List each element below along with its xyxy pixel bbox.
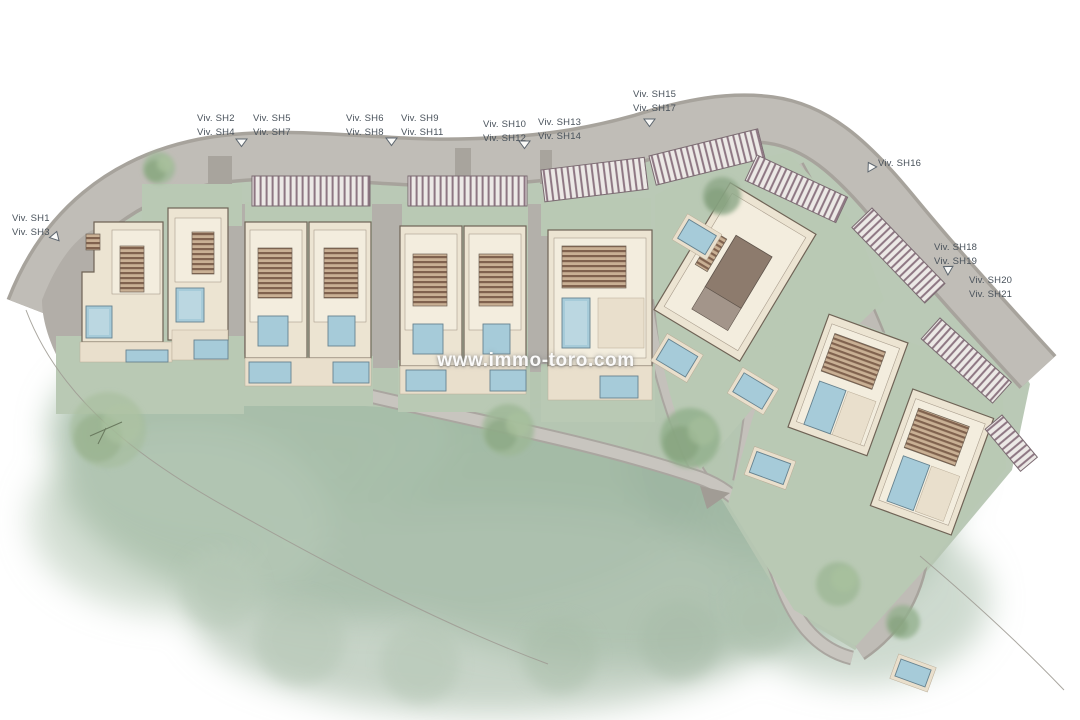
plot-label-sh16: Viv. SH16 [878, 157, 921, 171]
pool [126, 350, 168, 362]
pool [333, 362, 369, 383]
tree [482, 404, 534, 456]
tree [143, 152, 175, 184]
driveway-strip [372, 204, 402, 368]
plot-label-sh18-sh19: Viv. SH18Viv. SH19 [934, 241, 977, 268]
pool [600, 376, 638, 398]
plot-label-sh10-sh12: Viv. SH10Viv. SH12 [483, 118, 526, 145]
plot-label-sh2-sh4: Viv. SH2Viv. SH4 [197, 112, 235, 139]
pool [328, 316, 355, 346]
plot-label-sh20-sh21: Viv. SH20Viv. SH21 [969, 274, 1012, 301]
pool [406, 370, 446, 391]
tree [660, 408, 720, 468]
pool [194, 340, 228, 359]
pool [258, 316, 288, 346]
villa-sh1 [82, 222, 163, 342]
villa-sh3 [168, 208, 228, 340]
site-plan-canvas: Viv. SH1Viv. SH3 Viv. SH2Viv. SH4 Viv. S… [0, 0, 1080, 720]
plot-label-sh5-sh7: Viv. SH5Viv. SH7 [253, 112, 291, 139]
slat-fence [408, 176, 527, 206]
tree [70, 392, 146, 468]
plot-label-sh15-sh17: Viv. SH15Viv. SH17 [633, 88, 676, 115]
tree [886, 605, 920, 639]
pool [249, 362, 291, 383]
plot-label-sh9-sh11: Viv. SH9Viv. SH11 [401, 112, 443, 139]
slat-fence [252, 176, 370, 206]
plot-label-sh1-sh3: Viv. SH1Viv. SH3 [12, 212, 50, 239]
tree [816, 562, 860, 606]
pool [490, 370, 526, 391]
watermark-text: www.immo-toro.com [437, 350, 634, 372]
tree [703, 177, 741, 215]
villa-sh13-sh14 [548, 230, 652, 400]
plot-label-sh6-sh8: Viv. SH6Viv. SH8 [346, 112, 384, 139]
plot-label-sh13-sh14: Viv. SH13Viv. SH14 [538, 116, 581, 143]
